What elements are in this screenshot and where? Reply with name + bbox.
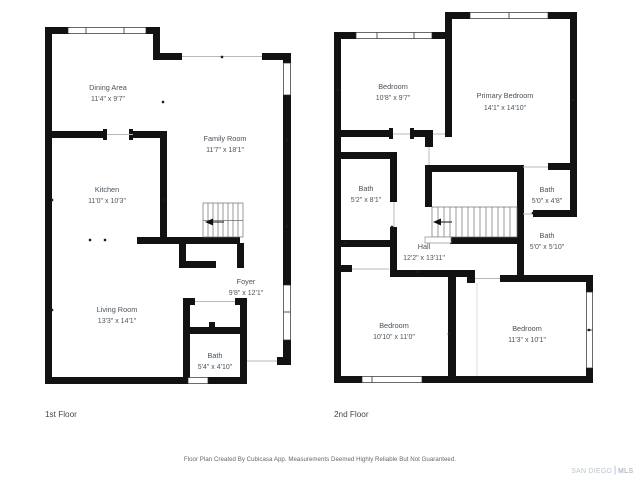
watermark-divider: [615, 466, 616, 475]
room-label-hall: Hall 12'2" x 13'11": [403, 242, 445, 262]
room-name: Bedroom: [378, 82, 408, 91]
room-dims: 11'7" x 18'1": [206, 147, 244, 154]
room-dims: 10'10" x 11'0": [373, 334, 415, 341]
room-name: Bath: [207, 351, 222, 360]
room-dims: 12'2" x 13'11": [403, 255, 445, 262]
watermark-primary: SAN DIEGO: [571, 468, 612, 475]
room-name: Foyer: [237, 277, 256, 286]
floor-plan-page: Dining Area 11'4" x 9'7" Family Room 11'…: [0, 0, 640, 480]
first-floor-windows: [68, 28, 291, 384]
room-label-bedroom-br: Bedroom 11'3" x 10'1": [508, 324, 546, 344]
mls-watermark: SAN DIEGO MLS: [571, 466, 633, 476]
room-name: Primary Bedroom: [477, 91, 534, 100]
floor-plan-image: Dining Area 11'4" x 9'7" Family Room 11'…: [0, 0, 640, 480]
window-symbol: [284, 63, 291, 95]
room-dims: 11'4" x 9'7": [91, 96, 125, 103]
first-floor-stairs: [203, 203, 243, 237]
room-dims: 5'4" x 4'10": [198, 364, 233, 371]
room-name: Living Room: [97, 305, 138, 314]
room-label-living-room: Living Room 13'3" x 14'1": [97, 305, 138, 325]
room-name: Bath: [539, 231, 554, 240]
disclaimer-text: Floor Plan Created By Cubicasa App. Meas…: [184, 456, 456, 463]
room-label-kitchen: Kitchen 11'0" x 10'3": [88, 185, 126, 205]
room-name: Bath: [539, 185, 554, 194]
room-label-foyer: Foyer 9'8" x 12'1": [229, 277, 264, 297]
room-name: Bedroom: [379, 321, 409, 330]
room-dims: 13'3" x 14'1": [98, 318, 137, 325]
room-label-bath-1: Bath 5'4" x 4'10": [198, 351, 233, 371]
room-name: Bath: [358, 184, 373, 193]
room-dims: 14'1" x 14'10": [484, 105, 527, 112]
room-dims: 5'0" x 5'10": [530, 244, 565, 251]
room-dims: 11'0" x 10'3": [88, 198, 126, 205]
window-symbol: [188, 378, 208, 384]
first-floor-plan: Dining Area 11'4" x 9'7" Family Room 11'…: [45, 27, 291, 419]
stairs-direction-arrow-icon: [205, 219, 213, 226]
room-dims: 11'3" x 10'1": [508, 337, 546, 344]
window-symbol: [362, 377, 422, 383]
first-floor-walls: [45, 27, 291, 384]
room-label-bedroom-bl: Bedroom 10'10" x 11'0": [373, 321, 415, 341]
room-label-bath-top-right: Bath 5'0" x 4'8": [532, 185, 563, 205]
room-name: Bedroom: [512, 324, 542, 333]
room-label-bedroom-tl: Bedroom 10'8" x 9'7": [376, 82, 411, 102]
room-label-bath-left: Bath 5'2" x 8'1": [351, 184, 382, 204]
window-symbol: [68, 28, 146, 34]
stairs-direction-arrow-icon: [433, 219, 441, 226]
room-label-bath-mid-right: Bath 5'0" x 5'10": [530, 231, 565, 251]
window-symbol: [356, 33, 432, 39]
floor-label-2nd: 2nd Floor: [334, 410, 369, 419]
room-name: Kitchen: [95, 185, 119, 194]
first-floor-dimension-dots: [51, 56, 288, 311]
floor-label-1st: 1st Floor: [45, 410, 77, 419]
room-name: Hall: [418, 242, 431, 251]
room-dims: 5'0" x 4'8": [532, 198, 563, 205]
first-floor-openings: [107, 57, 277, 362]
second-floor-plan: Bedroom 10'8" x 9'7" Primary Bedroom 14'…: [334, 12, 593, 419]
room-dims: 9'8" x 12'1": [229, 290, 264, 297]
room-label-family-room: Family Room 11'7" x 18'1": [204, 134, 247, 154]
room-name: Dining Area: [89, 83, 128, 92]
room-dims: 10'8" x 9'7": [376, 95, 411, 102]
room-name: Family Room: [204, 134, 247, 143]
room-label-dining-area: Dining Area 11'4" x 9'7": [89, 83, 128, 103]
watermark-secondary: MLS: [618, 468, 634, 475]
room-dims: 5'2" x 8'1": [351, 197, 382, 204]
window-symbol: [284, 285, 291, 340]
room-label-primary-bedroom: Primary Bedroom 14'1" x 14'10": [477, 91, 534, 112]
